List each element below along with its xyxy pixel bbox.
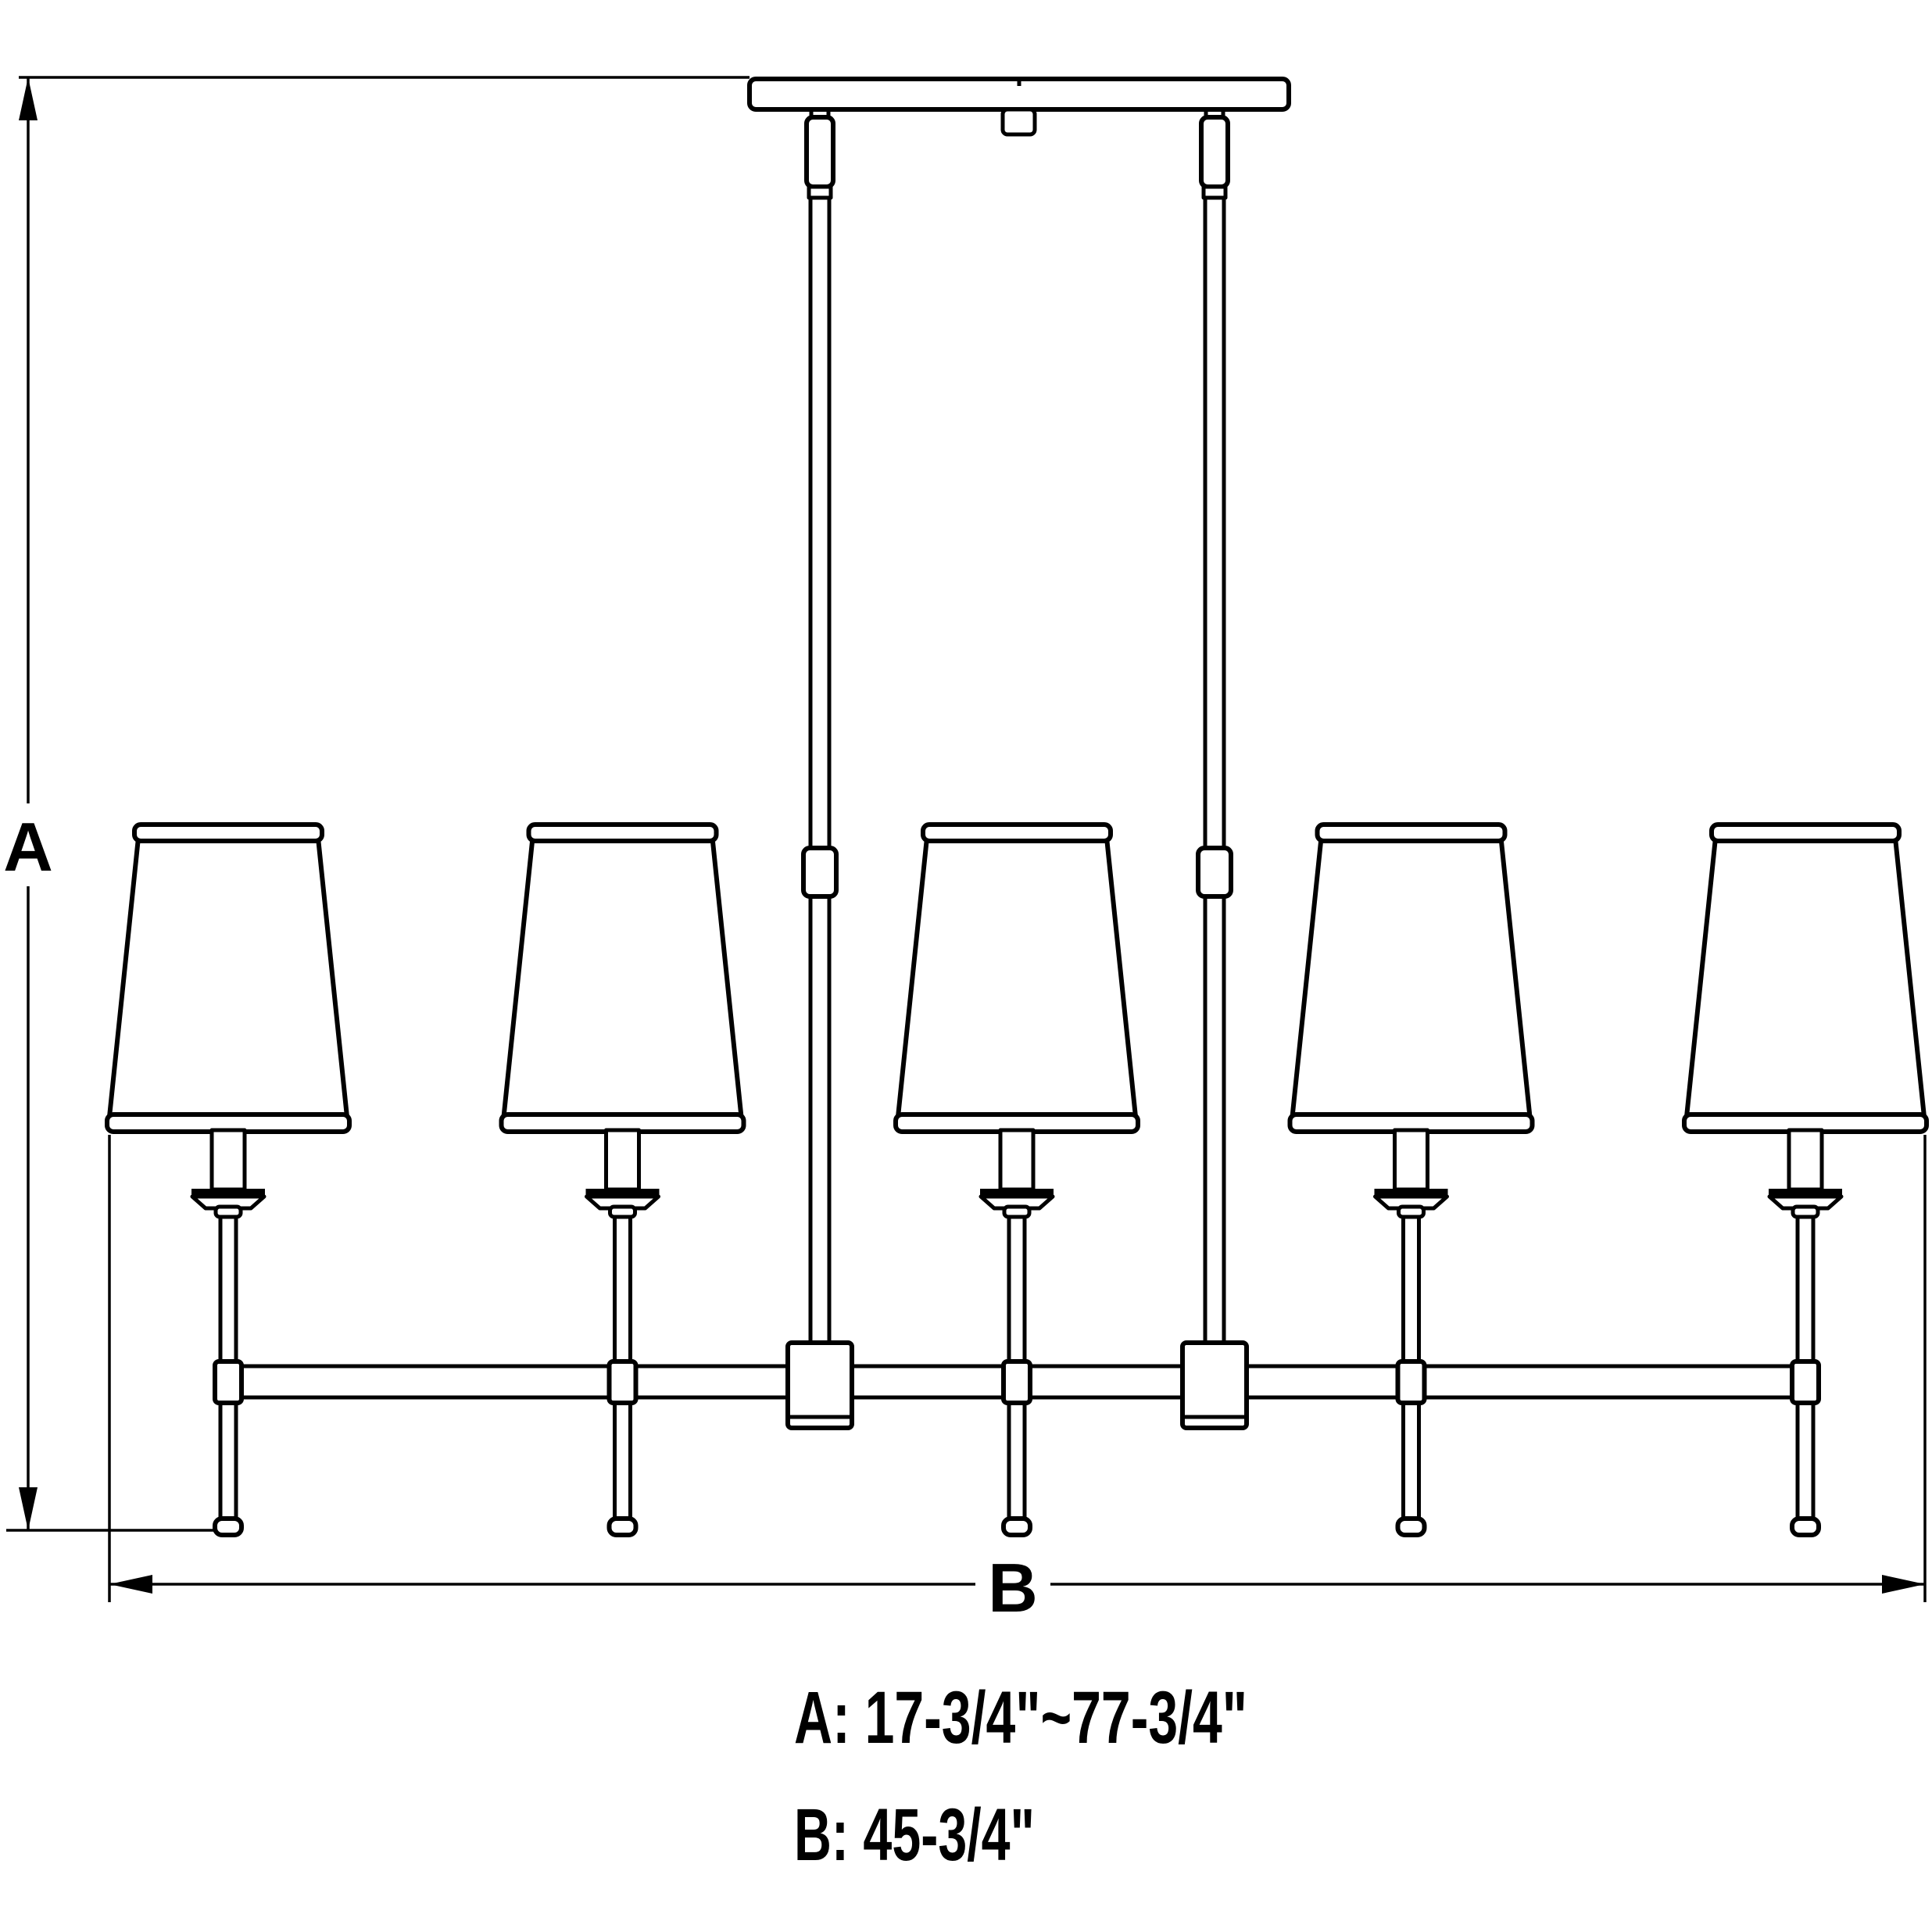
light-5 [1684,825,1927,1535]
downrod-right [1182,109,1247,1428]
arrow-up-icon [19,77,38,120]
arrow-down-icon [19,1487,38,1530]
dimension-a-label: A [3,808,53,885]
dimension-b-label: B [988,1549,1038,1626]
downrod-left [788,109,852,1428]
canopy-center-nipple [1003,109,1035,134]
diagram-canvas: A B A: 17-3/4"~77-3/4" B: 45-3/4" [0,0,1932,1932]
light-1 [107,825,349,1535]
spec-line-b: B: 45-3/4" [794,1794,1035,1877]
light-2 [502,825,744,1535]
light-4 [1290,825,1533,1535]
light-3 [896,825,1138,1535]
spec-line-a: A: 17-3/4"~77-3/4" [794,1676,1247,1759]
arrow-left-icon [109,1575,152,1594]
dimension-diagram: A B A: 17-3/4"~77-3/4" B: 45-3/4" [0,0,1932,1932]
dimension-a: A [3,77,750,1530]
spec-text-block: A: 17-3/4"~77-3/4" B: 45-3/4" [794,1676,1247,1877]
arrow-right-icon [1882,1575,1925,1594]
